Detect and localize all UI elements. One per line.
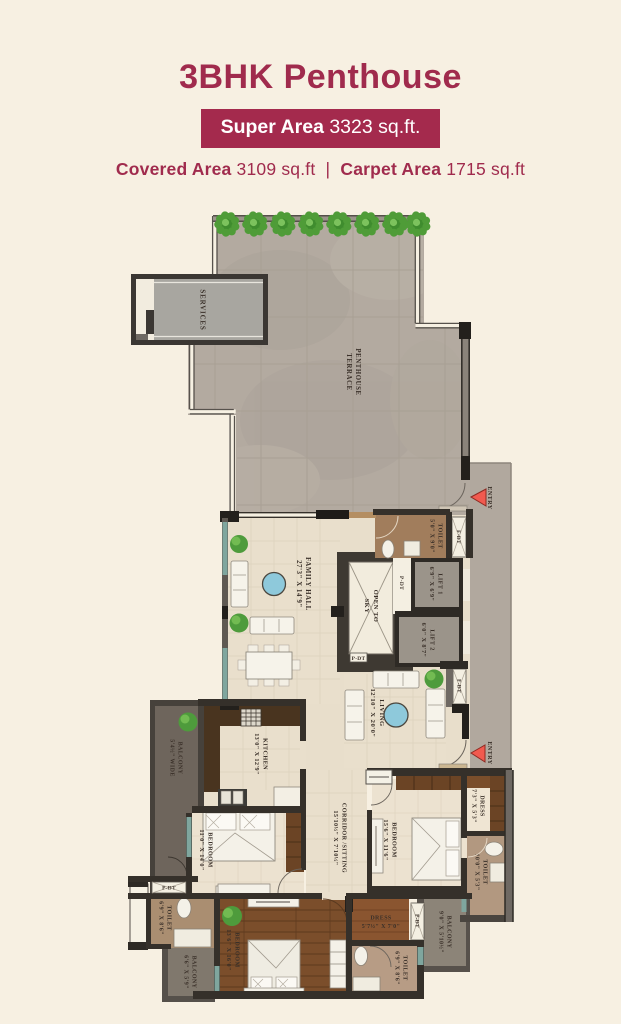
svg-text:P-DT: P-DT [162,886,176,892]
svg-text:ENTRY: ENTRY [486,741,492,764]
svg-text:CORRIDOR /SITTING15'10½" X 7'1: CORRIDOR /SITTING15'10½" X 7'10½" [332,803,348,873]
svg-text:KITCHEN13'0" X 12'9": KITCHEN13'0" X 12'9" [253,733,269,775]
svg-text:SERVICES: SERVICES [199,289,207,330]
svg-text:P-DT: P-DT [398,576,404,590]
svg-text:BEDROOM13'6" X 16'0": BEDROOM13'6" X 16'0" [225,929,241,971]
svg-text:P-DT: P-DT [352,656,366,662]
svg-text:P-DT: P-DT [414,914,420,928]
svg-text:ENTRY: ENTRY [486,486,492,509]
svg-text:BEDROOM15'6" X 11'6": BEDROOM15'6" X 11'6" [382,819,398,860]
svg-text:BEDROOM11'0" X 14'0": BEDROOM11'0" X 14'0" [198,829,214,870]
svg-text:F-DT: F-DT [456,679,462,693]
svg-text:F-DT: F-DT [455,530,461,544]
